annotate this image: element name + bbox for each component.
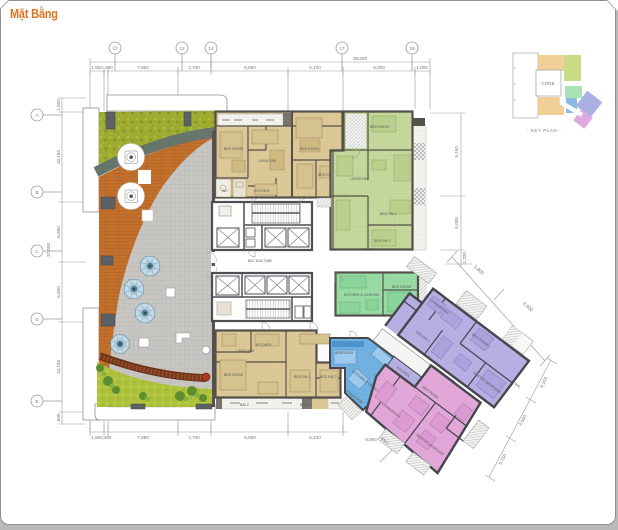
svg-text:B2C DNC DNB: B2C DNC DNB [248,259,272,263]
svg-text:BED RM: BED RM [318,173,332,177]
svg-text:B: B [35,190,38,195]
svg-text:KITCHEN & LIVIN RM.: KITCHEN & LIVIN RM. [344,293,380,297]
svg-text:LIVING RM: LIVING RM [258,159,276,163]
svg-text:37,000: 37,000 [46,243,51,257]
svg-text:12: 12 [179,46,185,51]
svg-text:6,890: 6,890 [56,226,61,238]
svg-text:5,800: 5,800 [473,264,485,276]
svg-text:10: 10 [112,46,118,51]
svg-text:BED ROOM: BED ROOM [224,147,243,151]
svg-text:BALC: BALC [240,403,250,407]
svg-text:5,750: 5,750 [498,453,508,466]
svg-text:,500: ,500 [56,413,61,422]
svg-text:WC: WC [222,189,228,193]
svg-text:6,100: 6,100 [309,435,321,440]
svg-text:8,550: 8,550 [244,435,256,440]
svg-text:CORE: CORE [541,81,554,86]
svg-text:3,700: 3,700 [188,435,200,440]
svg-text:E: E [35,399,38,404]
svg-text:BAL: BAL [514,382,522,389]
svg-text:6,850: 6,850 [56,286,61,298]
svg-text:BED RM 2: BED RM 2 [320,375,337,379]
svg-text:14: 14 [208,46,214,51]
svg-text:10,150: 10,150 [56,360,61,374]
svg-text:BED RM 1: BED RM 1 [380,212,397,216]
svg-text:17: 17 [339,46,345,51]
svg-text:LIVING RM: LIVING RM [236,349,254,353]
svg-text:2,700: 2,700 [462,252,467,264]
svg-text:8,000: 8,000 [373,65,385,70]
svg-text:7,850: 7,850 [137,435,149,440]
svg-text:10,150: 10,150 [56,150,61,164]
svg-text:1,000: 1,000 [416,65,428,70]
svg-text:BALC: BALC [300,403,310,407]
svg-text:3,700: 3,700 [188,65,200,70]
svg-text:6,900: 6,900 [522,301,534,313]
svg-text:BED ROOM: BED ROOM [370,125,389,129]
svg-text:KITCHEN: KITCHEN [256,343,272,347]
svg-text:9,150: 9,150 [454,146,459,158]
svg-text:1,500: 1,500 [91,65,103,70]
svg-text:8,100: 8,100 [539,376,549,389]
svg-text:8,000: 8,000 [365,437,377,442]
svg-text:400: 400 [105,65,113,70]
svg-text:BED RM 2: BED RM 2 [374,239,391,243]
svg-text:6,000: 6,000 [454,217,459,229]
svg-text:4,550: 4,550 [518,414,528,427]
svg-text:1,500: 1,500 [91,435,103,440]
svg-text:LIVING RM: LIVING RM [350,177,368,181]
svg-text:,400: ,400 [103,435,112,440]
svg-text:KITCHEN: KITCHEN [254,189,270,193]
svg-text:- KEY PLAN -: - KEY PLAN - [527,128,561,133]
svg-text:38,600: 38,600 [353,56,367,61]
svg-text:BED ROOM: BED ROOM [300,147,319,151]
svg-text:BEDROOM: BEDROOM [335,351,353,355]
svg-text:6,100: 6,100 [309,65,321,70]
svg-text:1,500: 1,500 [56,99,61,111]
svg-text:BED RM 1: BED RM 1 [294,375,311,379]
svg-text:8,550: 8,550 [244,65,256,70]
svg-text:BED ROOM: BED ROOM [392,285,411,289]
svg-text:19: 19 [409,46,415,51]
svg-text:7,850: 7,850 [137,65,149,70]
svg-text:BED ROOM: BED ROOM [224,373,243,377]
